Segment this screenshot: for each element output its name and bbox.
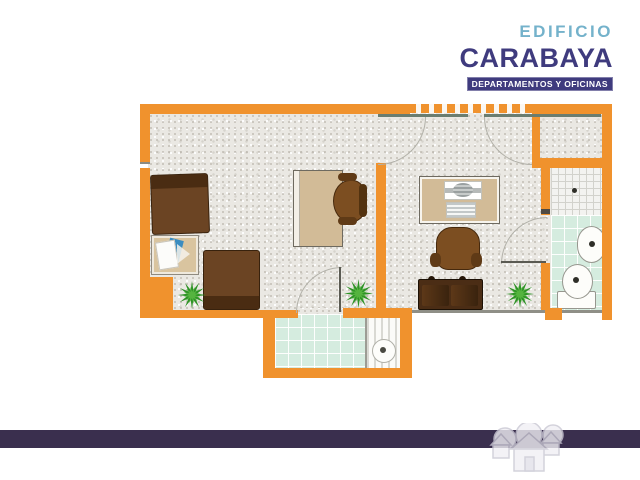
wall-corner-bottom-right bbox=[602, 308, 612, 320]
chair-backrest bbox=[359, 184, 367, 217]
window-line-bottom bbox=[562, 310, 602, 313]
wall-right bbox=[602, 104, 612, 320]
toilet-drain bbox=[573, 277, 579, 283]
plant-icon bbox=[506, 280, 534, 308]
wall-kitchen-bottom bbox=[263, 368, 412, 378]
sofa-cushion bbox=[451, 285, 478, 306]
shower-drain bbox=[572, 188, 577, 193]
door-leaf bbox=[501, 261, 546, 263]
chair-armrest bbox=[338, 173, 357, 181]
sofa bbox=[418, 279, 483, 310]
bed-2 bbox=[203, 250, 260, 310]
chair-armrest bbox=[471, 253, 482, 267]
nightstand bbox=[151, 235, 199, 275]
desk-edge bbox=[294, 171, 300, 246]
wall-left-upper bbox=[140, 104, 150, 162]
wall-bathroom-left-upper bbox=[541, 168, 550, 215]
left-wall-window bbox=[140, 162, 150, 164]
brand-block: EDIFICIO CARABAYA DEPARTAMENTOS Y OFICIN… bbox=[459, 22, 613, 92]
wall-left-lower bbox=[140, 168, 150, 280]
door-hinge-mark bbox=[541, 209, 550, 214]
houses-watermark-icon bbox=[487, 423, 577, 475]
wall-bathroom-left-lower bbox=[541, 263, 550, 312]
plant-icon bbox=[178, 281, 206, 309]
wall-top-left bbox=[140, 104, 410, 114]
flyer-page: EDIFICIO CARABAYA DEPARTAMENTOS Y OFICIN… bbox=[0, 0, 640, 480]
chair-armrest bbox=[430, 253, 441, 267]
paper-sheet-white bbox=[155, 240, 179, 271]
desk-plate bbox=[453, 183, 473, 197]
window-line-bottom bbox=[412, 310, 545, 313]
sofa-cushion bbox=[422, 285, 449, 306]
wall-divider bbox=[376, 163, 386, 310]
brand-banner: DEPARTAMENTOS Y OFICINAS bbox=[467, 77, 613, 91]
kitchen-sink-drain bbox=[380, 347, 386, 353]
chair-armrest bbox=[338, 217, 357, 225]
wall-kitchen-right bbox=[400, 310, 412, 378]
sink-drain bbox=[589, 241, 595, 247]
door-leaf bbox=[339, 267, 341, 312]
wall-bathroom-bottom bbox=[545, 308, 562, 320]
bed-1 bbox=[150, 173, 210, 235]
table-shade bbox=[177, 244, 190, 264]
bed-headboard bbox=[204, 296, 259, 309]
plant-icon bbox=[344, 279, 373, 308]
work-desk bbox=[419, 176, 500, 224]
wall-top-right bbox=[532, 104, 612, 114]
brand-line-edificio: EDIFICIO bbox=[459, 22, 613, 42]
brand-line-carabaya: CARABAYA bbox=[459, 43, 613, 74]
desk-papers bbox=[444, 181, 482, 200]
desk-notepad bbox=[446, 202, 476, 218]
window-dashes bbox=[408, 104, 534, 113]
bed-headboard bbox=[151, 174, 207, 189]
